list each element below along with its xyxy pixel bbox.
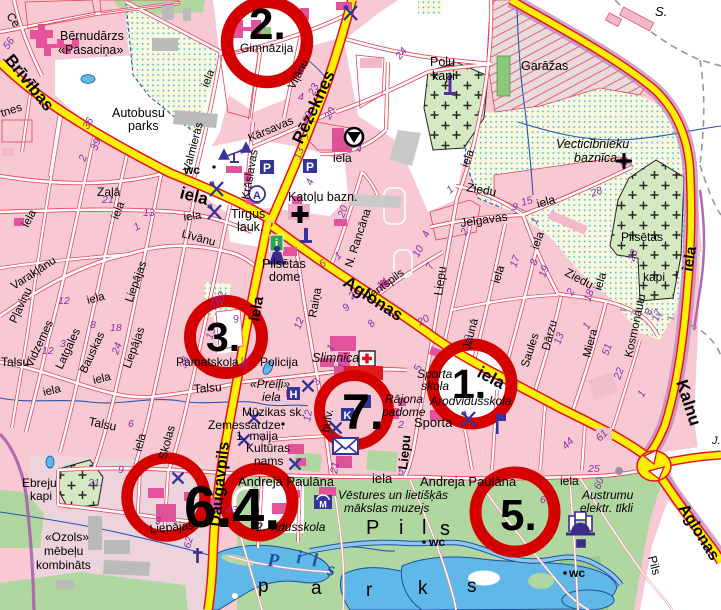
svg-text:4.: 4. (232, 477, 280, 542)
svg-text:H: H (290, 389, 298, 401)
svg-text:12: 12 (42, 345, 54, 357)
svg-text:Vēstures un lietišķās: Vēstures un lietišķās (338, 488, 448, 502)
svg-text:Austrumu: Austrumu (581, 488, 634, 502)
svg-text:iela: iela (372, 471, 393, 486)
svg-text:kapi: kapi (643, 270, 665, 284)
svg-text:Polu: Polu (430, 55, 455, 69)
svg-text:iela: iela (183, 210, 203, 224)
svg-text:25: 25 (587, 463, 600, 475)
svg-text:mēbeļu: mēbeļu (44, 544, 83, 558)
svg-text:9: 9 (118, 464, 124, 476)
svg-text:4: 4 (356, 143, 362, 155)
svg-text:3: 3 (60, 338, 66, 350)
svg-text:3: 3 (155, 515, 161, 527)
svg-text:Pilsētas: Pilsētas (262, 257, 306, 271)
svg-text:13: 13 (143, 207, 155, 219)
svg-text:P: P (266, 550, 281, 572)
svg-text:«Preiļi»: «Preiļi» (250, 377, 290, 391)
svg-text:«Ozols»: «Ozols» (45, 530, 89, 544)
svg-text:Andreja Paulāna: Andreja Paulāna (420, 474, 517, 489)
svg-text:4: 4 (298, 91, 304, 103)
svg-text:6: 6 (128, 418, 134, 430)
svg-text:Pilsētas: Pilsētas (621, 230, 663, 244)
svg-text:Garāžas: Garāžas (521, 59, 568, 73)
svg-text:r: r (366, 580, 373, 601)
svg-text:Kultūras: Kultūras (246, 441, 290, 455)
svg-text:iela: iela (262, 390, 281, 404)
svg-text:p: p (258, 576, 269, 597)
svg-text:wc: wc (568, 566, 585, 580)
svg-text:mākslas muzejs: mākslas muzejs (344, 501, 429, 515)
svg-text:kapi: kapi (30, 489, 52, 503)
svg-text:18: 18 (110, 322, 122, 334)
svg-text:8: 8 (90, 319, 96, 331)
svg-text:l: l (422, 517, 426, 539)
svg-text:Talsu: Talsu (193, 380, 222, 396)
svg-text:1.: 1. (452, 361, 486, 407)
svg-text:Ebreju: Ebreju (22, 476, 57, 490)
svg-text:elektr. tīkli: elektr. tīkli (580, 501, 633, 515)
svg-text:21.: 21. (87, 477, 103, 489)
svg-text:2: 2 (397, 419, 404, 431)
svg-text:Bērnudārzs: Bērnudārzs (60, 29, 124, 43)
svg-text:Slimnīca: Slimnīca (312, 351, 359, 365)
svg-text:iela: iela (333, 151, 352, 165)
svg-text:nams: nams (254, 454, 283, 468)
svg-text:wc: wc (428, 535, 445, 549)
svg-text:Vecticībnieku: Vecticībnieku (556, 137, 629, 151)
svg-text:5.: 5. (500, 491, 537, 540)
svg-text:Autobusu: Autobusu (112, 106, 165, 120)
svg-text:6: 6 (540, 494, 546, 506)
svg-text:P: P (306, 160, 314, 174)
svg-text:P: P (263, 161, 271, 175)
svg-text:S.: S. (655, 4, 667, 19)
svg-text:3.: 3. (206, 314, 240, 360)
svg-text:Mūzikas sk.: Mūzikas sk. (242, 405, 305, 419)
svg-text:Rājona: Rājona (385, 392, 423, 406)
svg-text:Talsu: Talsu (1, 355, 29, 369)
svg-text:k: k (418, 578, 428, 599)
svg-text:5: 5 (398, 466, 404, 478)
svg-text:P: P (366, 517, 379, 539)
svg-text:dome: dome (269, 270, 300, 284)
svg-text:9: 9 (512, 201, 518, 213)
svg-text:M: M (319, 500, 327, 510)
svg-text:s: s (467, 576, 477, 597)
svg-text:Tirgus: Tirgus (231, 207, 265, 221)
svg-text:parks: parks (128, 119, 159, 133)
svg-text:12: 12 (301, 409, 315, 423)
svg-text:6.: 6. (184, 475, 232, 540)
svg-text:A: A (253, 190, 261, 202)
svg-text:12: 12 (58, 295, 70, 307)
svg-text:J.: J. (711, 435, 721, 447)
svg-text:iela: iela (560, 474, 579, 488)
svg-text:skola: skola (421, 379, 449, 393)
svg-text:Policija: Policija (260, 355, 298, 369)
svg-text:baznīca: baznīca (574, 151, 617, 165)
svg-text:lauk.: lauk. (237, 220, 263, 234)
svg-text:«Pasaciņa»: «Pasaciņa» (58, 43, 123, 57)
svg-text:7.: 7. (342, 384, 384, 440)
svg-text:a: a (311, 578, 322, 599)
svg-text:kapi: kapi (432, 69, 455, 83)
svg-text:kombināts: kombināts (36, 558, 91, 572)
svg-text:padome: padome (381, 405, 426, 419)
svg-text:21: 21 (328, 461, 342, 476)
svg-text:Katoļu bazn.: Katoļu bazn. (288, 190, 358, 204)
svg-text:wc: wc (183, 163, 200, 177)
svg-text:i: i (399, 517, 403, 539)
svg-text:2.: 2. (249, 0, 286, 49)
svg-text:21: 21 (101, 194, 114, 206)
